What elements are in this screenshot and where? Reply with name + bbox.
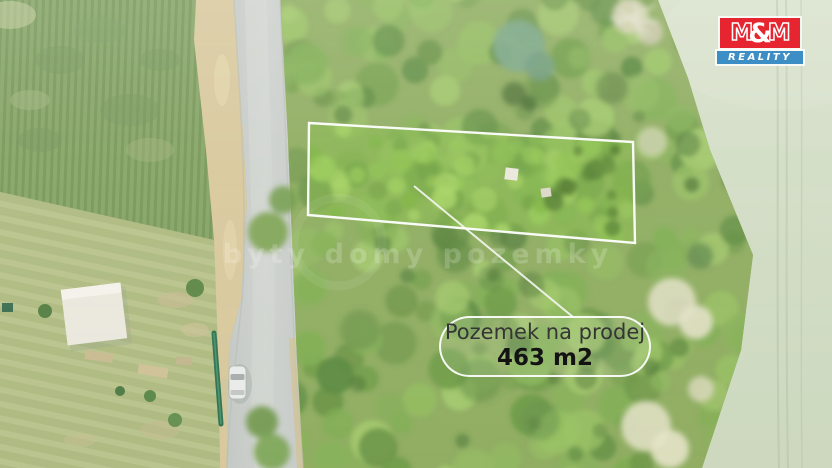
brand-logo: M & M REALITY: [717, 18, 803, 64]
badge-area: 463 m2: [497, 345, 593, 371]
badge-title: Pozemek na prodej: [445, 321, 645, 345]
brand-subtitle: REALITY: [728, 53, 792, 63]
brand-logo-mm: M & M: [720, 18, 800, 48]
brand-ampersand: &: [748, 20, 772, 47]
listing-badge: Pozemek na prodej 463 m2: [439, 316, 651, 377]
watermark-text: byty domy pozemky: [223, 239, 613, 270]
brand-logo-reality: REALITY: [717, 51, 803, 64]
aerial-photo: byty domy pozemky Pozemek na prodej 463 …: [0, 0, 832, 468]
aerial-photo-scene: byty domy pozemky: [0, 0, 832, 468]
haze-overlay: [0, 0, 832, 468]
